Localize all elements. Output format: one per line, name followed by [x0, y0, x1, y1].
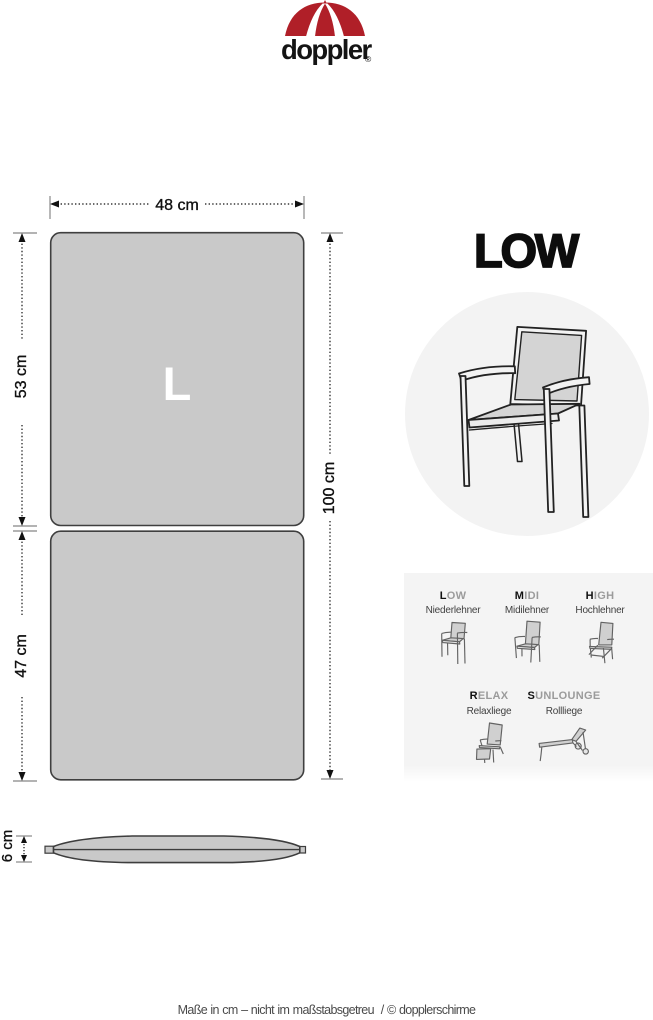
- svg-text:100 cm: 100 cm: [321, 462, 338, 514]
- svg-text:48 cm: 48 cm: [155, 197, 199, 214]
- svg-text:L: L: [163, 357, 192, 410]
- svg-text:doppler: doppler: [281, 34, 373, 65]
- svg-text:47 cm: 47 cm: [13, 634, 30, 678]
- svg-text:®: ®: [365, 54, 372, 64]
- svg-text:6 cm: 6 cm: [0, 830, 16, 863]
- svg-text:53 cm: 53 cm: [13, 355, 30, 399]
